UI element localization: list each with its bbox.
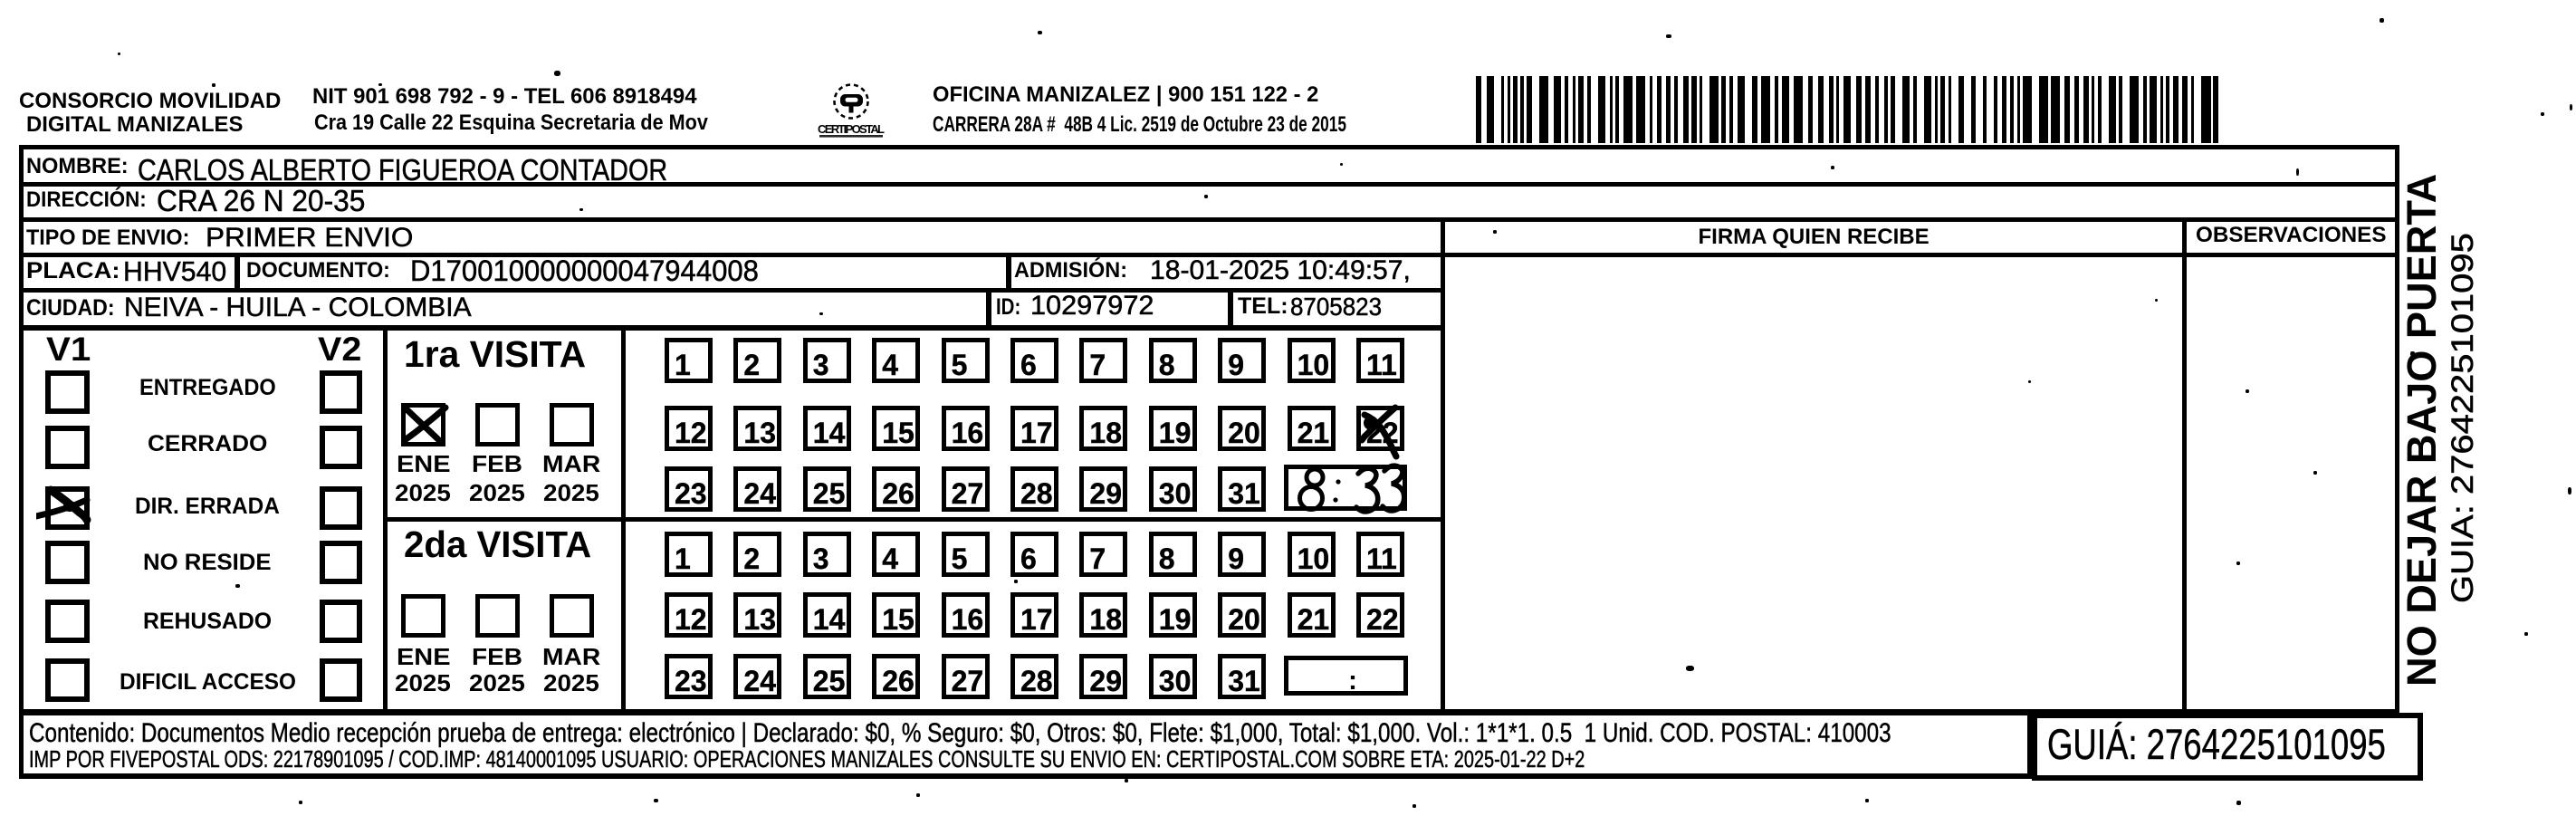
svg-text:CERTIPOSTAL: CERTIPOSTAL <box>818 122 885 136</box>
